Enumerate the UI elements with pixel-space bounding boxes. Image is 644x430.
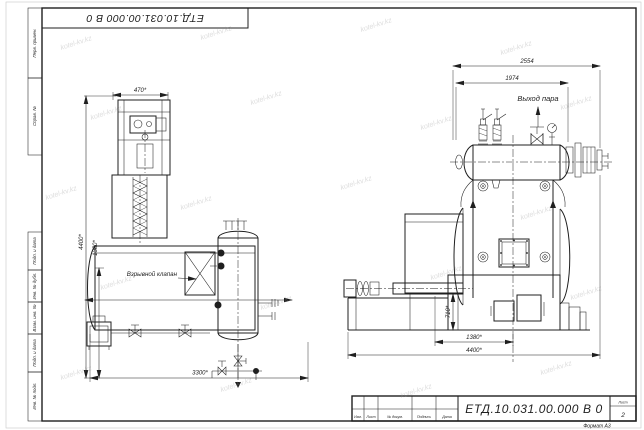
- steam-outlet-label: Выход пара: [517, 94, 558, 103]
- stamp-label: Взам. инв. №: [32, 304, 37, 331]
- top-designation-box: ЕТД.10.031.00.000 В 0: [42, 8, 248, 28]
- side-stamp-column: Перв. примен. Справ. № Подп. и дата Инв.…: [28, 8, 42, 421]
- boiler-body-front: [454, 135, 570, 362]
- steam-valve: [530, 127, 544, 145]
- drawing-canvas: ЕТД.10.031.00.000 В 0 Перв. примен. Спра…: [0, 0, 644, 430]
- explosion-valve-callout: Взрывной клапан: [127, 271, 196, 279]
- right-view-dimensions: 2554 1974 710* 1380* 4400*: [348, 59, 600, 359]
- stamp-label: Подп. и дата: [32, 237, 37, 265]
- drawing-sheet: ЕТД.10.031.00.000 В 0 Перв. примен. Спра…: [0, 0, 644, 430]
- access-door: [499, 239, 529, 267]
- dim-4400-left: 4400*: [79, 233, 85, 249]
- title-block: Изм. Лист № докум. Подпись Дата ЕТД.10.0…: [352, 396, 636, 430]
- dim-1380-left: 1380*: [93, 239, 99, 255]
- screw-conveyor-casing: [112, 175, 167, 245]
- safety-valve: [478, 109, 492, 144]
- explosion-valve-label: Взрывной клапан: [127, 271, 178, 278]
- stamp-label: Инв. № подл.: [32, 382, 37, 409]
- top-designation-text: ЕТД.10.031.00.000 В 0: [86, 12, 204, 24]
- col-date: Дата: [441, 415, 451, 419]
- document-designation: ЕТД.10.031.00.000 В 0: [465, 402, 603, 416]
- col-list: Лист: [365, 415, 375, 419]
- stamp-label: Подп. и дата: [32, 339, 37, 367]
- fuel-feeder-tower: [118, 100, 170, 175]
- sheet-number: 2: [620, 412, 625, 419]
- dim-710: 710*: [446, 305, 452, 318]
- boiler-shell-side: [85, 246, 292, 330]
- dim-3300: 3300*: [192, 371, 208, 377]
- handhole-covers: [478, 180, 550, 262]
- left-view: Взрывной клапан: [79, 88, 308, 388]
- sheet-cell-label: Лист: [617, 401, 627, 405]
- stamp-label: Справ. №: [32, 106, 37, 126]
- steam-drum: [450, 143, 614, 180]
- dim-1974: 1974: [505, 76, 519, 82]
- stamp-label: Инв. № дубл.: [32, 272, 37, 299]
- screw-feeder-drive: [344, 280, 473, 297]
- safety-valve: [492, 109, 506, 144]
- dim-470: 470*: [134, 88, 147, 94]
- dim-4400-right: 4400*: [466, 348, 482, 354]
- left-view-dimensions: 470* 4400* 1380* 3300*: [79, 88, 308, 382]
- steam-outlet-callout: Выход пара: [517, 94, 558, 127]
- stamp-label: Перв. примен.: [32, 28, 37, 57]
- col-izm: Изм.: [354, 415, 362, 419]
- col-doc: № докум.: [387, 415, 403, 419]
- col-sign: Подпись: [417, 415, 431, 419]
- vessel-drain: [212, 344, 262, 388]
- separator-vessel: [210, 218, 278, 385]
- format-label: Формат А3: [583, 424, 611, 430]
- base-frame: [348, 275, 590, 330]
- pressure-gauge: [548, 124, 557, 146]
- dim-2554: 2554: [519, 59, 534, 65]
- dim-1380-right: 1380*: [466, 335, 482, 341]
- drain-piping-left: [111, 325, 210, 337]
- right-view: Выход пара: [344, 59, 614, 362]
